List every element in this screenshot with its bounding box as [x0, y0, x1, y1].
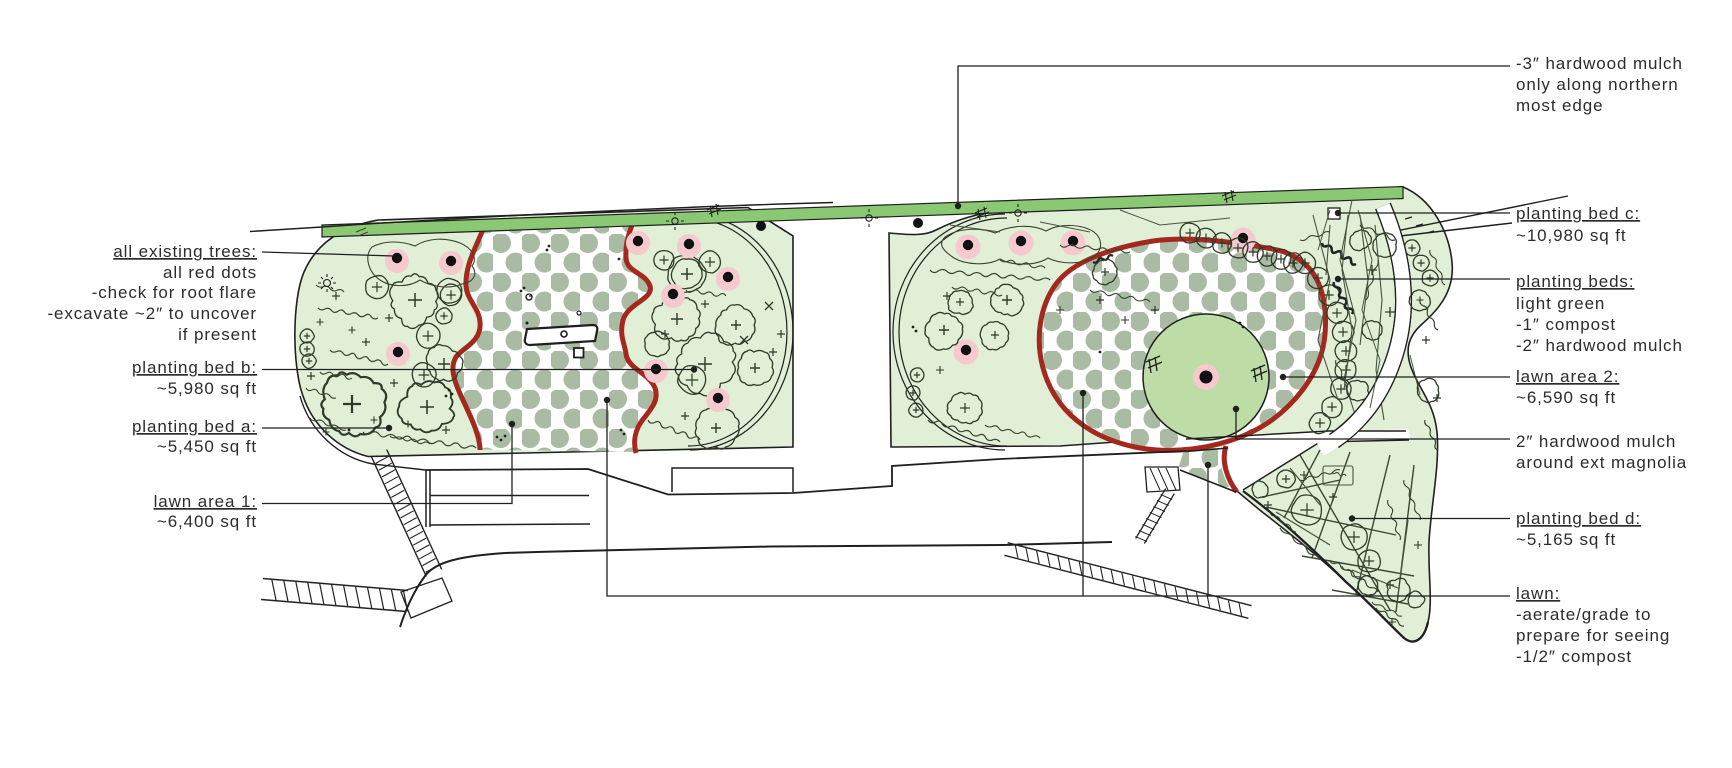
- svg-text:~5,980 sq ft: ~5,980 sq ft: [157, 379, 257, 398]
- svg-text:if present: if present: [178, 325, 257, 344]
- svg-text:planting bed b:: planting bed b:: [132, 358, 257, 377]
- svg-text:light green: light green: [1516, 294, 1605, 313]
- svg-text:planting bed a:: planting bed a:: [132, 417, 257, 436]
- svg-text:lawn area 2:: lawn area 2:: [1516, 367, 1619, 386]
- svg-text:planting bed c:: planting bed c:: [1516, 204, 1640, 223]
- svg-text:-3″ hardwood mulch: -3″ hardwood mulch: [1516, 54, 1683, 73]
- svg-text:lawn area 1:: lawn area 1:: [154, 492, 257, 511]
- svg-text:around ext magnolia: around ext magnolia: [1516, 453, 1687, 472]
- svg-text:~6,590 sq ft: ~6,590 sq ft: [1516, 388, 1616, 407]
- svg-text:all red dots: all red dots: [163, 263, 257, 282]
- svg-text:-excavate ~2″ to uncover: -excavate ~2″ to uncover: [47, 304, 257, 323]
- svg-text:planting bed d:: planting bed d:: [1516, 509, 1641, 528]
- svg-text:-check for root flare: -check for root flare: [92, 283, 257, 302]
- svg-text:lawn:: lawn:: [1516, 584, 1560, 603]
- svg-text:-aerate/grade to: -aerate/grade to: [1516, 605, 1651, 624]
- svg-text:most edge: most edge: [1516, 96, 1603, 115]
- svg-text:2″ hardwood mulch: 2″ hardwood mulch: [1516, 432, 1676, 451]
- svg-text:only along northern: only along northern: [1516, 75, 1679, 94]
- svg-text:-1/2″ compost: -1/2″ compost: [1516, 647, 1632, 666]
- svg-text:-1″ compost: -1″ compost: [1516, 315, 1616, 334]
- svg-text:~10,980 sq ft: ~10,980 sq ft: [1516, 226, 1626, 245]
- svg-text:all existing trees:: all existing trees:: [113, 242, 257, 261]
- svg-text:-2″ hardwood mulch: -2″ hardwood mulch: [1516, 336, 1683, 355]
- svg-text:planting beds:: planting beds:: [1516, 272, 1634, 291]
- svg-text:~5,165 sq ft: ~5,165 sq ft: [1516, 530, 1616, 549]
- svg-text:~5,450 sq ft: ~5,450 sq ft: [157, 437, 257, 456]
- svg-text:prepare for seeing: prepare for seeing: [1516, 626, 1670, 645]
- svg-text:~6,400 sq ft: ~6,400 sq ft: [157, 512, 257, 531]
